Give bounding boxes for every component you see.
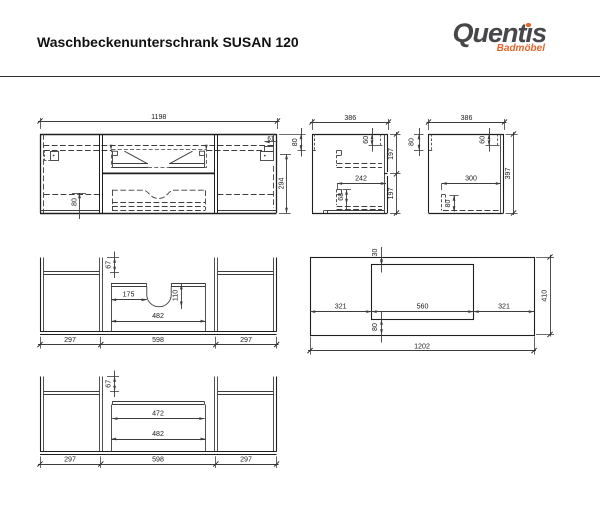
svg-text:321: 321: [335, 302, 347, 310]
svg-text:80: 80: [444, 200, 452, 208]
svg-text:60: 60: [479, 136, 487, 144]
svg-text:110: 110: [171, 290, 179, 301]
svg-text:68: 68: [337, 193, 345, 201]
svg-text:80: 80: [371, 323, 379, 331]
svg-text:175: 175: [123, 291, 135, 299]
svg-text:60: 60: [362, 136, 370, 144]
svg-text:297: 297: [64, 336, 76, 344]
svg-text:1202: 1202: [414, 342, 430, 350]
svg-text:1198: 1198: [151, 113, 166, 121]
svg-text:297: 297: [240, 336, 252, 344]
svg-text:321: 321: [498, 302, 510, 310]
svg-text:197: 197: [387, 188, 395, 200]
svg-text:197: 197: [387, 148, 395, 160]
svg-text:80: 80: [291, 138, 299, 146]
svg-text:80: 80: [408, 138, 416, 146]
svg-text:297: 297: [240, 456, 252, 464]
svg-text:598: 598: [152, 336, 164, 344]
svg-text:482: 482: [152, 430, 164, 438]
svg-text:598: 598: [152, 456, 164, 464]
svg-text:297: 297: [64, 456, 76, 464]
svg-text:410: 410: [541, 290, 549, 302]
svg-text:386: 386: [344, 114, 356, 122]
svg-text:242: 242: [355, 175, 367, 183]
svg-text:30: 30: [371, 249, 379, 257]
svg-text:560: 560: [417, 302, 429, 310]
svg-text:294: 294: [278, 178, 286, 190]
svg-text:80: 80: [71, 198, 79, 206]
svg-text:386: 386: [461, 114, 473, 122]
svg-text:61: 61: [267, 136, 274, 143]
svg-text:300: 300: [465, 175, 477, 183]
svg-text:67: 67: [104, 261, 112, 269]
svg-text:472: 472: [152, 409, 164, 417]
svg-text:397: 397: [504, 168, 512, 180]
svg-text:482: 482: [152, 312, 164, 320]
svg-text:67: 67: [104, 380, 112, 388]
